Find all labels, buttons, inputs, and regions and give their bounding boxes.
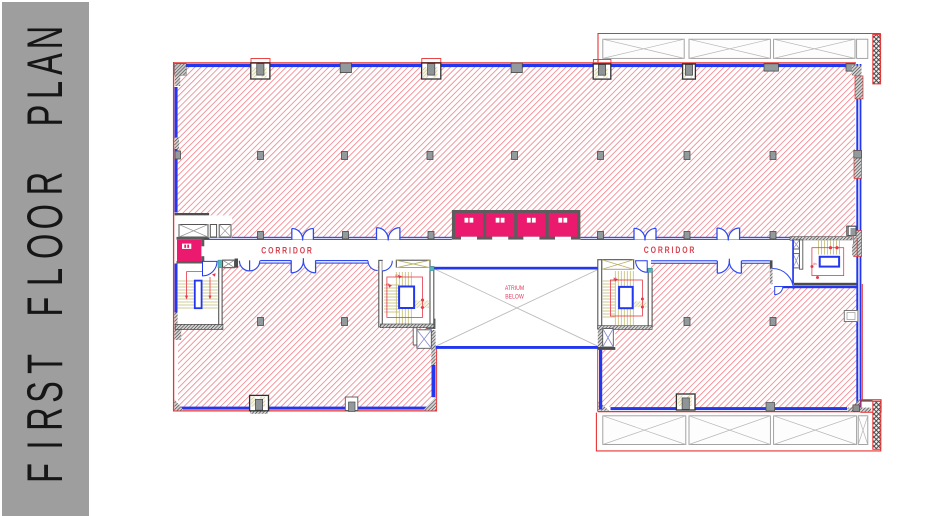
svg-text:O: O xyxy=(17,204,73,229)
svg-text:up: up xyxy=(613,277,617,281)
svg-text:I: I xyxy=(17,440,73,449)
svg-text:dn: dn xyxy=(386,283,390,287)
svg-text:P: P xyxy=(17,105,73,127)
svg-text:A: A xyxy=(17,52,73,74)
svg-text:N: N xyxy=(17,26,73,49)
svg-text:CORRIDOR: CORRIDOR xyxy=(261,244,314,255)
svg-text:CORRIDOR: CORRIDOR xyxy=(644,244,697,255)
svg-text:T: T xyxy=(17,354,73,374)
svg-text:L: L xyxy=(17,81,73,99)
svg-text:F: F xyxy=(17,463,73,483)
svg-text:up: up xyxy=(395,274,399,278)
svg-text:BELOW: BELOW xyxy=(505,294,524,301)
svg-text:R: R xyxy=(17,172,73,195)
svg-text:dn: dn xyxy=(813,262,817,266)
svg-text:R: R xyxy=(17,407,73,430)
svg-text:F: F xyxy=(17,297,73,317)
svg-text:S: S xyxy=(17,381,73,403)
svg-text:L: L xyxy=(17,268,73,286)
svg-text:ATRIUM: ATRIUM xyxy=(505,285,524,292)
svg-text:O: O xyxy=(17,234,73,259)
